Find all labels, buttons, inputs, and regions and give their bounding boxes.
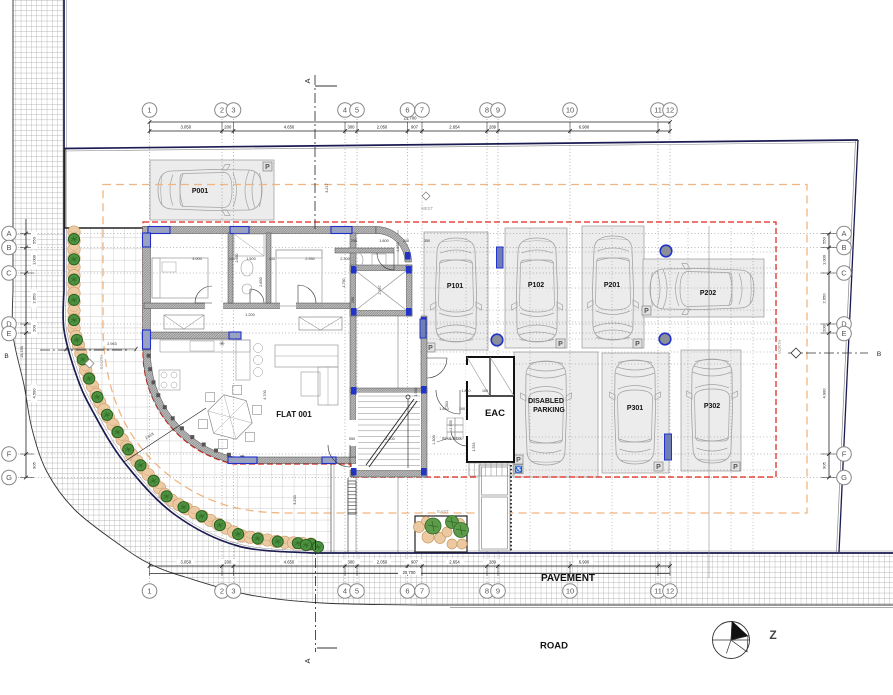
svg-text:1.800: 1.800 (379, 239, 389, 243)
svg-text:200: 200 (822, 324, 827, 331)
svg-text:100: 100 (269, 257, 275, 261)
svg-text:F: F (842, 450, 847, 459)
svg-text:2.654: 2.654 (449, 560, 460, 565)
svg-text:6: 6 (405, 106, 409, 115)
svg-text:905: 905 (32, 461, 37, 468)
svg-text:1.000: 1.000 (32, 254, 37, 265)
svg-text:5: 5 (355, 106, 359, 115)
svg-text:4: 4 (343, 106, 347, 115)
svg-text:3.000: 3.000 (192, 257, 202, 261)
svg-text:2.963: 2.963 (107, 342, 117, 346)
svg-text:A: A (6, 229, 11, 238)
svg-text:2.650: 2.650 (32, 293, 37, 304)
svg-text:8: 8 (485, 587, 489, 596)
svg-text:1.303: 1.303 (432, 435, 436, 445)
svg-text:NORTH: NORTH (777, 340, 782, 355)
svg-text:200: 200 (224, 560, 232, 565)
svg-text:1.930: 1.930 (414, 388, 418, 397)
svg-text:6: 6 (405, 587, 409, 596)
svg-text:PARKING: PARKING (533, 407, 565, 414)
svg-text:Z: Z (769, 628, 776, 642)
svg-text:15,155: 15,155 (20, 346, 24, 358)
svg-text:EAC: EAC (485, 408, 505, 419)
svg-text:2.050: 2.050 (377, 125, 388, 130)
svg-text:ROAD: ROAD (540, 641, 568, 652)
svg-text:A: A (303, 78, 312, 83)
svg-text:2.050: 2.050 (377, 560, 388, 565)
svg-text:10: 10 (566, 587, 574, 596)
svg-text:907: 907 (411, 560, 419, 565)
svg-text:3.050: 3.050 (181, 125, 192, 130)
svg-text:PAVEMENT: PAVEMENT (541, 573, 595, 584)
svg-text:8: 8 (485, 106, 489, 115)
svg-text:E: E (6, 329, 11, 338)
svg-text:3.050: 3.050 (181, 560, 192, 565)
svg-text:905: 905 (822, 461, 827, 468)
svg-text:1: 1 (147, 106, 151, 115)
svg-text:P202: P202 (700, 290, 716, 297)
svg-text:2.455: 2.455 (449, 420, 453, 430)
svg-text:550: 550 (822, 236, 827, 243)
svg-text:1.797: 1.797 (378, 285, 382, 295)
svg-text:9: 9 (496, 587, 500, 596)
svg-text:7: 7 (420, 587, 424, 596)
svg-text:350: 350 (424, 239, 430, 243)
svg-text:289: 289 (489, 125, 497, 130)
svg-text:2.950: 2.950 (305, 257, 315, 261)
svg-text:C: C (841, 269, 847, 278)
svg-text:503: 503 (445, 401, 449, 407)
svg-text:SOUTH: SOUTH (99, 355, 104, 370)
svg-text:EAST: EAST (437, 509, 449, 514)
svg-text:2.850: 2.850 (235, 254, 239, 263)
svg-text:1.570: 1.570 (396, 242, 400, 252)
svg-text:3.233: 3.233 (293, 495, 297, 505)
svg-text:1.810: 1.810 (462, 389, 471, 393)
svg-text:3: 3 (231, 587, 235, 596)
svg-text:4.700: 4.700 (263, 390, 267, 400)
svg-text:200: 200 (403, 239, 409, 243)
svg-text:WEST: WEST (421, 206, 434, 211)
svg-text:1.200: 1.200 (245, 313, 255, 317)
svg-text:B: B (4, 353, 8, 360)
svg-text:2.300: 2.300 (340, 257, 350, 261)
svg-text:FLAT 001: FLAT 001 (276, 410, 312, 419)
svg-text:10: 10 (566, 106, 574, 115)
svg-text:♿: ♿ (514, 466, 522, 474)
svg-text:B: B (6, 243, 11, 252)
svg-text:11: 11 (654, 587, 662, 596)
svg-text:2: 2 (220, 106, 224, 115)
svg-text:7: 7 (420, 106, 424, 115)
svg-text:4.650: 4.650 (284, 560, 295, 565)
svg-text:100: 100 (482, 389, 488, 393)
svg-text:C: C (6, 269, 12, 278)
svg-text:A: A (303, 658, 312, 663)
svg-text:200: 200 (351, 239, 357, 243)
svg-text:2.654: 2.654 (449, 125, 460, 130)
svg-text:100: 100 (459, 407, 465, 411)
svg-text:6.900: 6.900 (579, 125, 590, 130)
svg-text:G: G (6, 473, 12, 482)
svg-text:✳: ✳ (219, 340, 225, 348)
svg-text:289: 289 (489, 560, 497, 565)
svg-text:300: 300 (348, 125, 356, 130)
svg-text:1.000: 1.000 (822, 254, 827, 265)
svg-text:1.750: 1.750 (342, 279, 346, 288)
svg-text:2.850: 2.850 (259, 277, 263, 287)
svg-text:F: F (7, 450, 12, 459)
svg-text:200: 200 (224, 125, 232, 130)
svg-text:550: 550 (349, 437, 355, 441)
svg-text:4.900: 4.900 (822, 388, 827, 399)
svg-text:12: 12 (666, 587, 674, 596)
svg-text:1: 1 (147, 587, 151, 596)
svg-text:200: 200 (32, 324, 37, 331)
svg-text:P302: P302 (704, 403, 720, 410)
svg-text:5: 5 (355, 587, 359, 596)
svg-text:300: 300 (348, 560, 356, 565)
svg-text:P102: P102 (528, 282, 544, 289)
svg-text:6.900: 6.900 (579, 560, 590, 565)
svg-text:12: 12 (666, 106, 674, 115)
svg-text:20,700: 20,700 (403, 570, 416, 575)
svg-text:550: 550 (32, 236, 37, 243)
svg-text:B: B (841, 243, 846, 252)
svg-text:P101: P101 (447, 283, 463, 290)
svg-text:P301: P301 (627, 405, 643, 412)
svg-text:A: A (841, 229, 846, 238)
svg-text:250: 250 (351, 472, 355, 478)
svg-text:4.650: 4.650 (284, 125, 295, 130)
svg-text:1.500: 1.500 (246, 257, 256, 261)
svg-text:E: E (841, 329, 846, 338)
svg-text:2.400: 2.400 (385, 437, 395, 441)
svg-text:G: G (841, 473, 847, 482)
svg-text:2: 2 (220, 587, 224, 596)
svg-text:11: 11 (654, 106, 662, 115)
svg-text:2.650: 2.650 (822, 293, 827, 304)
svg-text:B: B (877, 351, 881, 358)
svg-text:DISABLED: DISABLED (528, 398, 564, 405)
svg-text:250: 250 (351, 297, 355, 303)
svg-text:P201: P201 (604, 282, 620, 289)
svg-text:4.500: 4.500 (32, 388, 37, 399)
svg-text:3.217: 3.217 (325, 183, 329, 193)
svg-text:3: 3 (231, 106, 235, 115)
svg-text:P001: P001 (192, 188, 208, 195)
svg-text:MAIL BOX: MAIL BOX (442, 436, 462, 441)
svg-text:9: 9 (496, 106, 500, 115)
svg-text:1.533: 1.533 (472, 443, 476, 452)
svg-text:4: 4 (343, 587, 347, 596)
svg-text:907: 907 (411, 125, 419, 130)
